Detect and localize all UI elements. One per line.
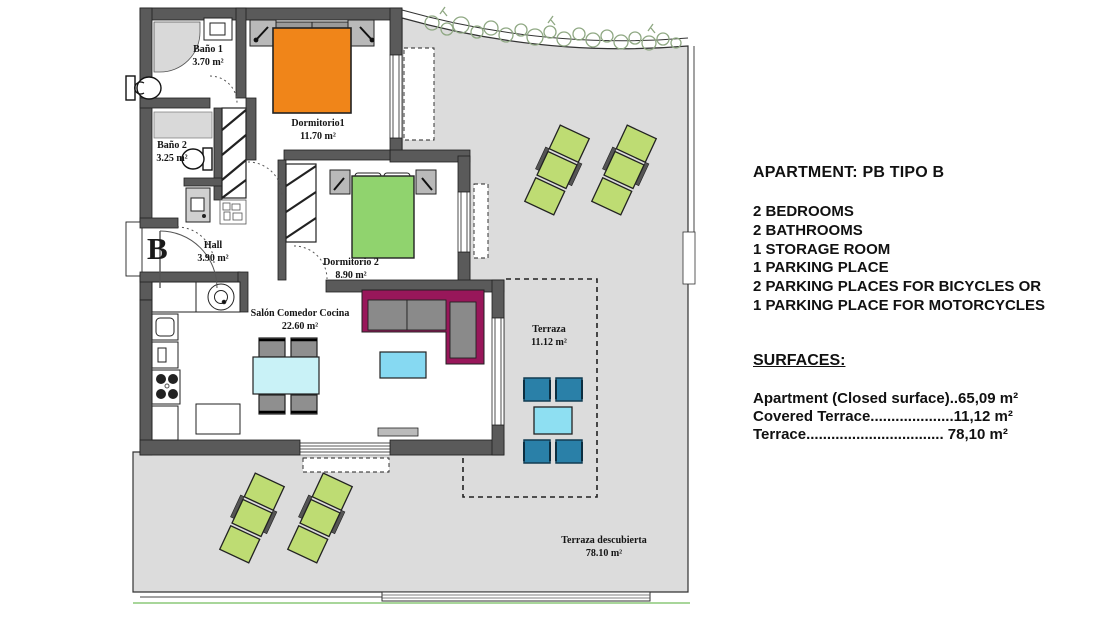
- feature-item: 1 PARKING PLACE: [753, 259, 1093, 278]
- room-label-banio2: Baño 2 3.25 m²: [156, 139, 187, 165]
- sink-icon: [204, 18, 232, 40]
- stove-icon: [152, 370, 180, 404]
- surface-item: Apartment (Closed surface)..65,09 m²: [753, 390, 1093, 408]
- room-label-dormitorio1: Dormitorio1 11.70 m²: [291, 117, 344, 143]
- surface-item: Terrace.................................…: [753, 426, 1093, 444]
- toilet-icon: [126, 76, 161, 100]
- window-dormitorio1: [390, 55, 402, 138]
- room-label-banio1: Baño 1 3.70 m²: [192, 43, 223, 69]
- washing-machine-icon: [186, 188, 210, 222]
- terrace-table-icon: [534, 407, 572, 434]
- room-label-salon: Salón Comedor Cocina 22.60 m²: [251, 307, 350, 333]
- fence-boundary: [133, 592, 690, 603]
- feature-list: 2 BEDROOMS 2 BATHROOMS 1 STORAGE ROOM 1 …: [753, 203, 1093, 316]
- room-label-terraza: Terraza 11.12 m²: [531, 323, 567, 349]
- room-label-dormitorio2: Dormitorio 2 8.90 m²: [323, 256, 379, 282]
- feature-item: 2 BEDROOMS: [753, 203, 1093, 222]
- window-salon-terrace: [492, 318, 504, 425]
- surface-item: Covered Terrace....................11,12…: [753, 408, 1093, 426]
- dining-table-icon: [253, 357, 319, 394]
- feature-item: 2 PARKING PLACES FOR BICYCLES OR: [753, 278, 1093, 297]
- info-panel: APARTMENT: PB TIPO B 2 BEDROOMS 2 BATHRO…: [753, 164, 1093, 444]
- feature-item: 1 STORAGE ROOM: [753, 241, 1093, 260]
- storage-tiles-icon: [220, 200, 246, 224]
- feature-item: 2 BATHROOMS: [753, 222, 1093, 241]
- surfaces-list: Apartment (Closed surface)..65,09 m² Cov…: [753, 390, 1093, 445]
- room-label-hall: Hall 3.90 m²: [197, 239, 228, 265]
- surfaces-heading: SURFACES:: [753, 352, 1093, 370]
- window-dormitorio2: [458, 192, 470, 252]
- coffee-table-icon: [380, 352, 426, 378]
- window-salon-bottom: [300, 443, 390, 452]
- unit-letter: B: [147, 231, 168, 267]
- feature-item: 1 PARKING PLACE FOR MOTORCYCLES: [753, 297, 1093, 316]
- wardrobe-icon: [222, 108, 246, 198]
- room-label-terraza-descubierta: Terraza descubierta 78.10 m²: [561, 534, 646, 560]
- wardrobe-icon: [286, 164, 316, 242]
- floor-plan-page: B Baño 1 3.70 m² Baño 2 3.25 m² Dormitor…: [0, 0, 1110, 623]
- apartment-title: APARTMENT: PB TIPO B: [753, 164, 1093, 182]
